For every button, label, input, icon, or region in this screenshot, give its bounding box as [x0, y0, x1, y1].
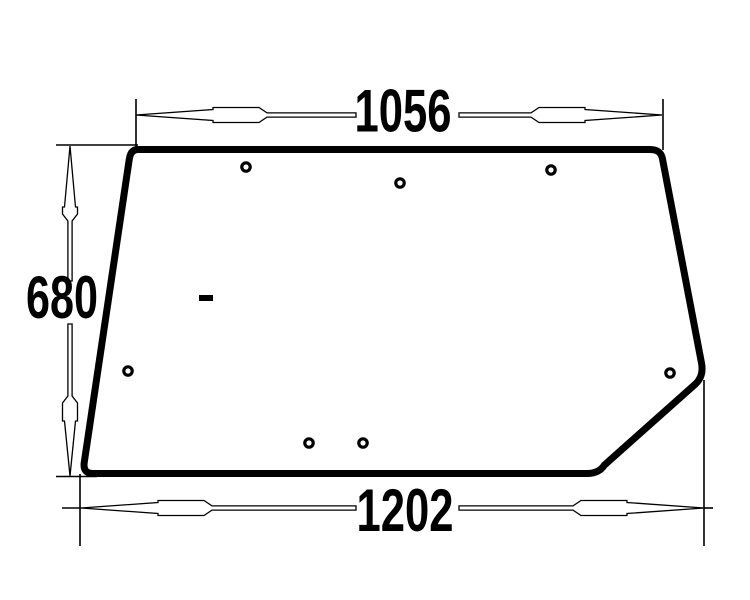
- mounting-hole: [242, 163, 250, 171]
- dimension-value-bottom-width: 1202: [357, 477, 454, 544]
- mounting-hole: [396, 179, 404, 187]
- mounting-hole: [666, 369, 674, 377]
- dimension-arrow-left: [81, 501, 356, 516]
- dimension-arrow-up: [63, 146, 78, 281]
- mounting-hole: [359, 439, 367, 447]
- dimension-arrow-down: [63, 324, 78, 476]
- dimension-arrow-right: [459, 501, 704, 516]
- panel-outline: [84, 150, 702, 474]
- dimension-arrow-right: [459, 108, 662, 123]
- glass-panel-drawing: 1056 680 1202: [0, 0, 750, 600]
- dimension-arrow-left: [136, 108, 356, 123]
- mounting-hole: [124, 367, 132, 375]
- mounting-hole: [547, 166, 555, 174]
- technical-drawing-canvas: 1056 680 1202: [0, 0, 750, 600]
- scan-artifact-dash: [199, 295, 213, 301]
- dimension-value-top-width: 1056: [355, 78, 452, 145]
- dimension-top-width: 1056: [136, 78, 663, 151]
- mounting-hole: [305, 439, 313, 447]
- dimension-value-left-height: 680: [26, 264, 98, 331]
